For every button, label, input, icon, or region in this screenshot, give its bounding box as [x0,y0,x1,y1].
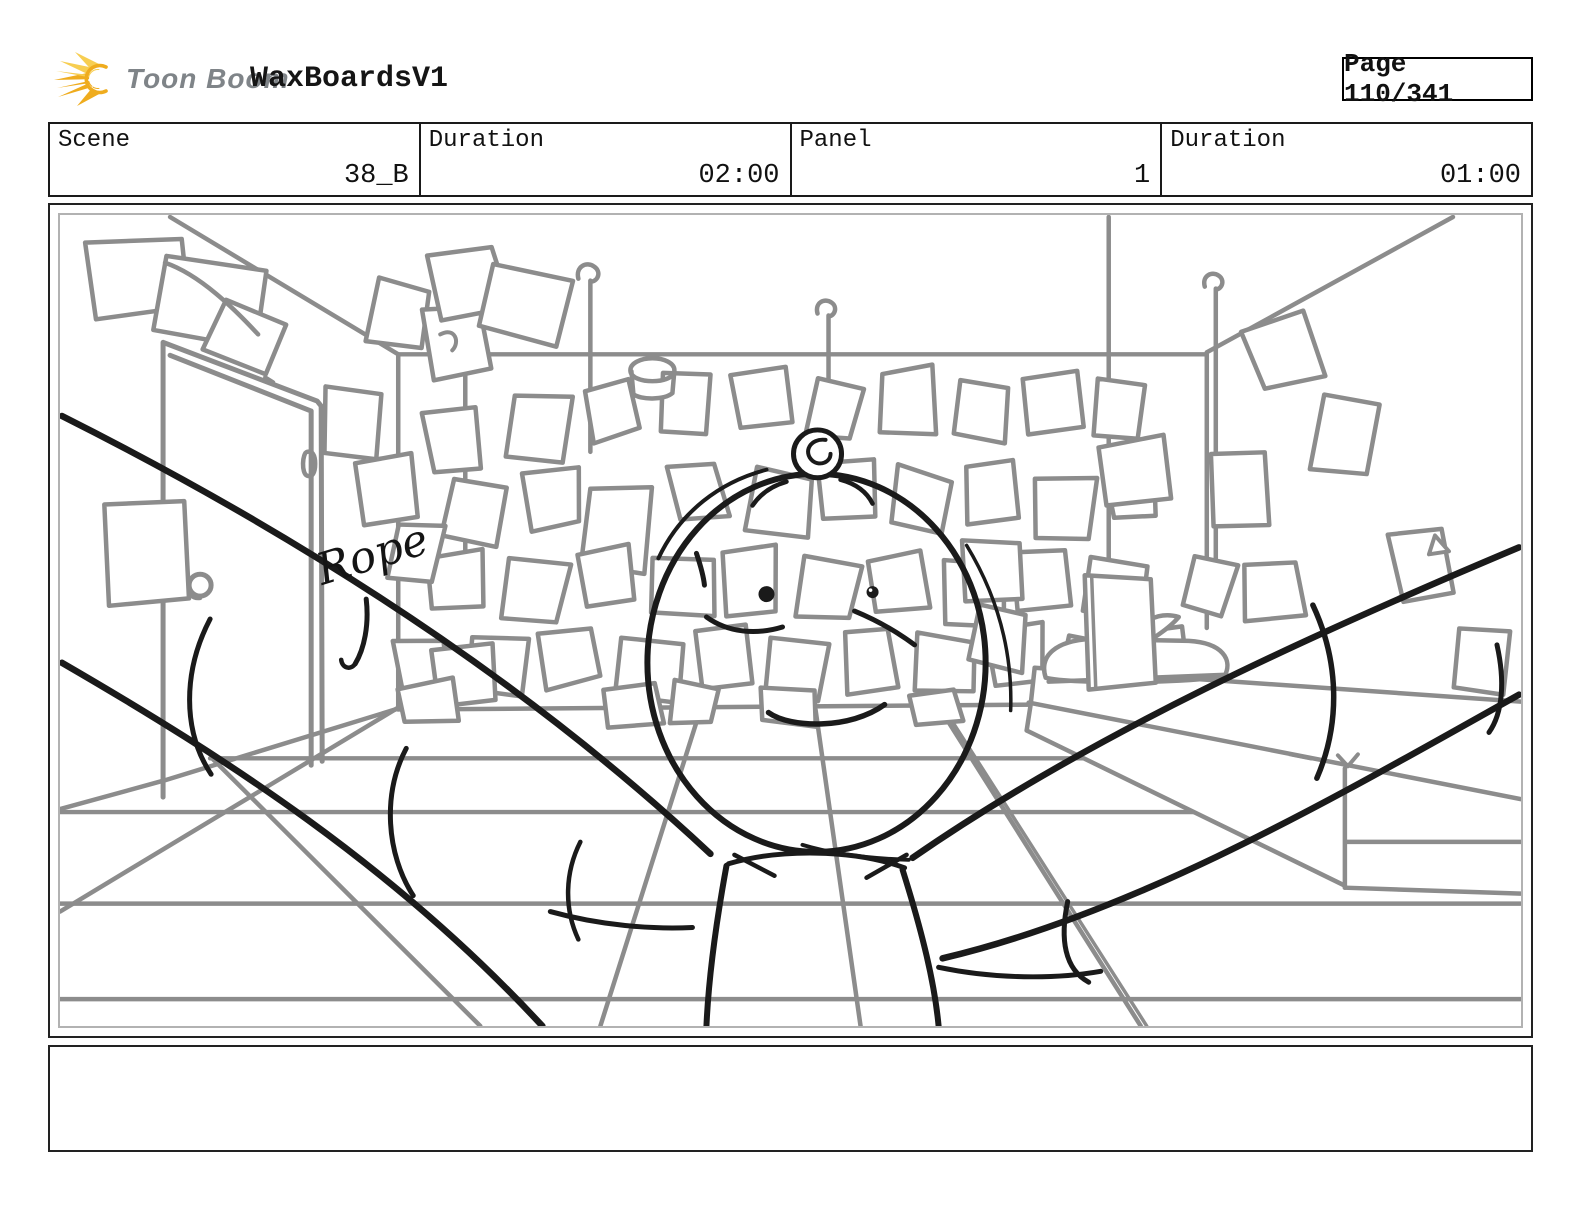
storyboard-panel: Rope [48,203,1533,1038]
document-title: WaxBoardsV1 [250,62,448,96]
storyboard-sketch: Rope [60,215,1521,1026]
panel-duration-value: 01:00 [1440,161,1521,191]
info-cell-panel-duration: Duration 01:00 [1162,124,1531,195]
caption-box [48,1045,1533,1152]
panel-info-bar: Scene 38_B Duration 02:00 Panel 1 Durati… [48,122,1533,197]
scene-duration-value: 02:00 [698,161,779,191]
info-cell-panel: Panel 1 [792,124,1163,195]
storyboard-page: Toon Boom WaxBoardsV1 Page 110/341 Scene… [0,0,1584,1224]
scene-label: Scene [58,127,130,154]
panel-duration-label: Duration [1170,127,1285,154]
info-cell-scene: Scene 38_B [50,124,421,195]
info-cell-scene-duration: Duration 02:00 [421,124,792,195]
page-number-box: Page 110/341 [1342,57,1533,101]
sticky-notes [85,231,1510,731]
panel-value: 1 [1134,161,1150,191]
panel-label: Panel [800,127,872,154]
scene-duration-label: Duration [429,127,544,154]
toonboom-starburst-icon [54,50,116,108]
page-number: Page 110/341 [1344,49,1531,109]
scene-value: 38_B [344,161,409,191]
storyboard-panel-inner-border: Rope [58,213,1523,1028]
